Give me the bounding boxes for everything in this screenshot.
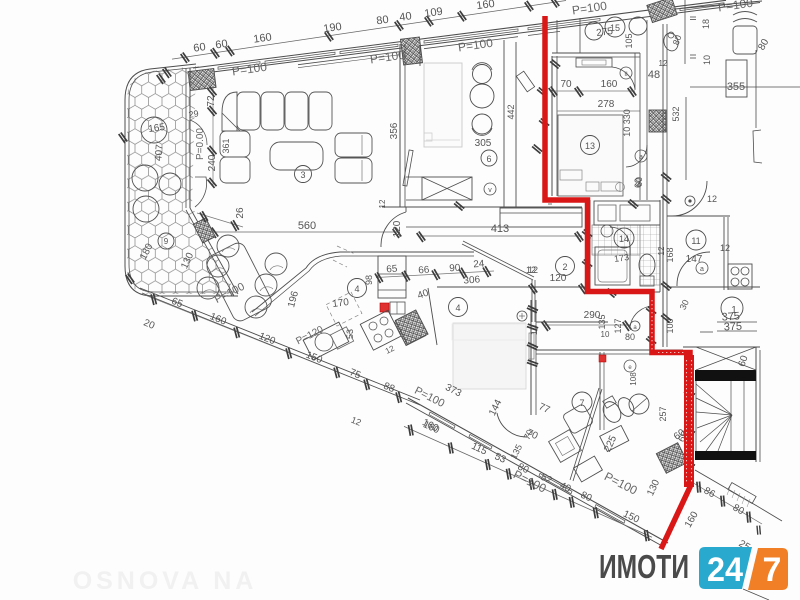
svg-text:90: 90 [449, 263, 461, 275]
svg-text:65: 65 [386, 264, 398, 276]
svg-text:442: 442 [506, 104, 516, 119]
svg-text:7: 7 [579, 398, 584, 408]
svg-text:168: 168 [665, 247, 675, 262]
svg-text:70: 70 [560, 79, 572, 90]
svg-text:14: 14 [619, 234, 629, 244]
svg-text:a: a [639, 154, 643, 161]
svg-text:257: 257 [658, 406, 668, 421]
svg-text:24: 24 [473, 259, 485, 271]
svg-text:a: a [700, 266, 704, 273]
svg-text:3: 3 [300, 170, 305, 180]
svg-text:98: 98 [364, 275, 374, 285]
svg-text:173: 173 [613, 252, 629, 264]
svg-text:147: 147 [686, 254, 703, 265]
svg-text:105: 105 [624, 33, 634, 48]
svg-text:OSNOVA NA: OSNOVA NA [73, 567, 258, 595]
svg-text:355: 355 [727, 81, 745, 93]
svg-text:18: 18 [701, 19, 711, 29]
svg-text:72: 72 [206, 95, 217, 107]
svg-text:60: 60 [633, 178, 643, 188]
svg-text:60: 60 [193, 41, 207, 55]
svg-text:407: 407 [153, 144, 165, 162]
svg-text:12: 12 [720, 243, 730, 253]
svg-text:190: 190 [323, 21, 343, 35]
svg-text:29: 29 [188, 108, 199, 119]
svg-text:4: 4 [455, 303, 460, 313]
svg-text:4: 4 [354, 284, 359, 294]
svg-text:532: 532 [671, 106, 681, 121]
svg-text:11: 11 [691, 236, 700, 246]
svg-text:2: 2 [562, 262, 567, 272]
svg-text:53: 53 [345, 329, 355, 339]
svg-text:127: 127 [613, 318, 623, 333]
svg-text:240: 240 [207, 154, 218, 171]
svg-text:12: 12 [528, 265, 538, 275]
svg-text:361: 361 [221, 138, 231, 153]
svg-text:160: 160 [601, 79, 618, 90]
svg-text:12: 12 [657, 246, 666, 255]
svg-text:v: v [488, 187, 492, 194]
svg-text:13: 13 [585, 141, 595, 151]
svg-text:6: 6 [486, 154, 491, 164]
svg-text:305: 305 [475, 138, 492, 149]
svg-text:80: 80 [625, 332, 635, 342]
svg-text:60: 60 [215, 38, 229, 52]
svg-text:12: 12 [707, 194, 717, 204]
svg-text:10 330: 10 330 [622, 109, 632, 137]
svg-text:40: 40 [399, 10, 413, 24]
svg-text:109: 109 [424, 6, 444, 20]
svg-text:7: 7 [763, 551, 782, 589]
svg-text:II: II [624, 72, 628, 78]
svg-text:80: 80 [376, 14, 390, 28]
svg-text:108: 108 [629, 372, 638, 386]
svg-text:306: 306 [463, 274, 481, 286]
svg-text:375: 375 [724, 321, 743, 334]
svg-text:66: 66 [418, 265, 430, 277]
svg-text:9: 9 [164, 237, 169, 246]
svg-text:135: 135 [597, 314, 607, 329]
svg-text:160: 160 [253, 31, 273, 45]
svg-text:120: 120 [550, 273, 567, 284]
svg-text:278: 278 [598, 99, 615, 110]
svg-text:10: 10 [601, 330, 610, 339]
svg-text:356: 356 [389, 122, 400, 139]
svg-text:10: 10 [702, 55, 712, 65]
svg-text:26: 26 [235, 207, 246, 219]
svg-text:24: 24 [707, 551, 743, 589]
svg-text:120: 120 [392, 220, 403, 237]
svg-text:560: 560 [298, 220, 316, 232]
svg-text:ИМОТИ: ИМОТИ [599, 548, 689, 585]
svg-text:48: 48 [648, 69, 660, 81]
